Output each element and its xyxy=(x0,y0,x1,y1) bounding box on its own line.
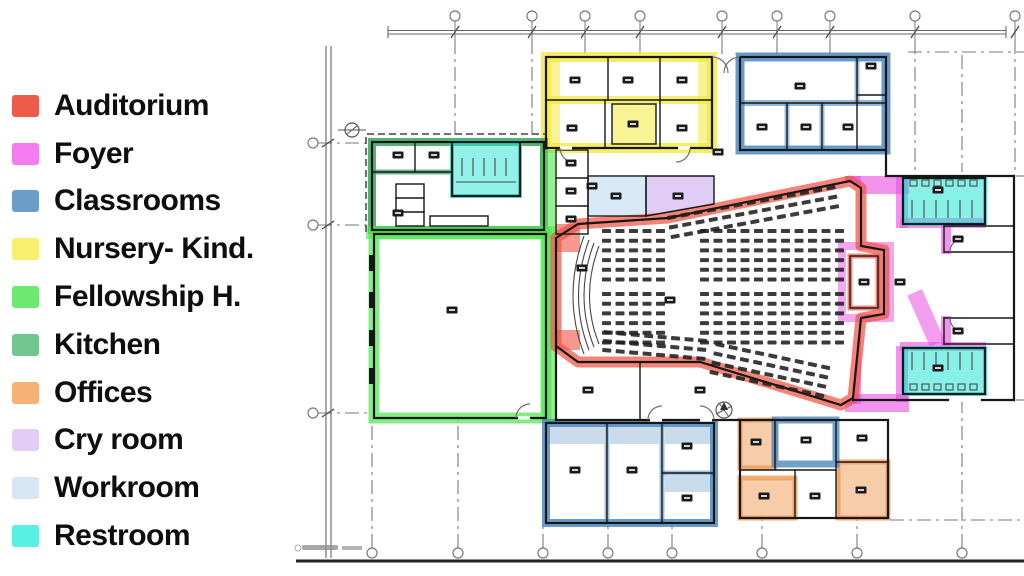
floor-plan-page: Auditorium Foyer Classrooms Nursery- Kin… xyxy=(0,0,1024,576)
title-block-scribble xyxy=(302,545,338,550)
room-nursery-kindergarten xyxy=(546,57,712,148)
room-restroom-foyer-north xyxy=(903,178,985,224)
stage-wall-highlight xyxy=(556,224,580,252)
compass-symbol xyxy=(716,402,732,418)
section-marker xyxy=(338,123,366,137)
room-restroom-foyer-south xyxy=(903,348,985,394)
stage-wall-highlight xyxy=(556,330,580,350)
title-block-scribble xyxy=(342,546,362,550)
title-block-bullet xyxy=(295,545,301,551)
floor-plan-drawing xyxy=(0,0,1024,576)
room-overlays xyxy=(366,57,986,523)
